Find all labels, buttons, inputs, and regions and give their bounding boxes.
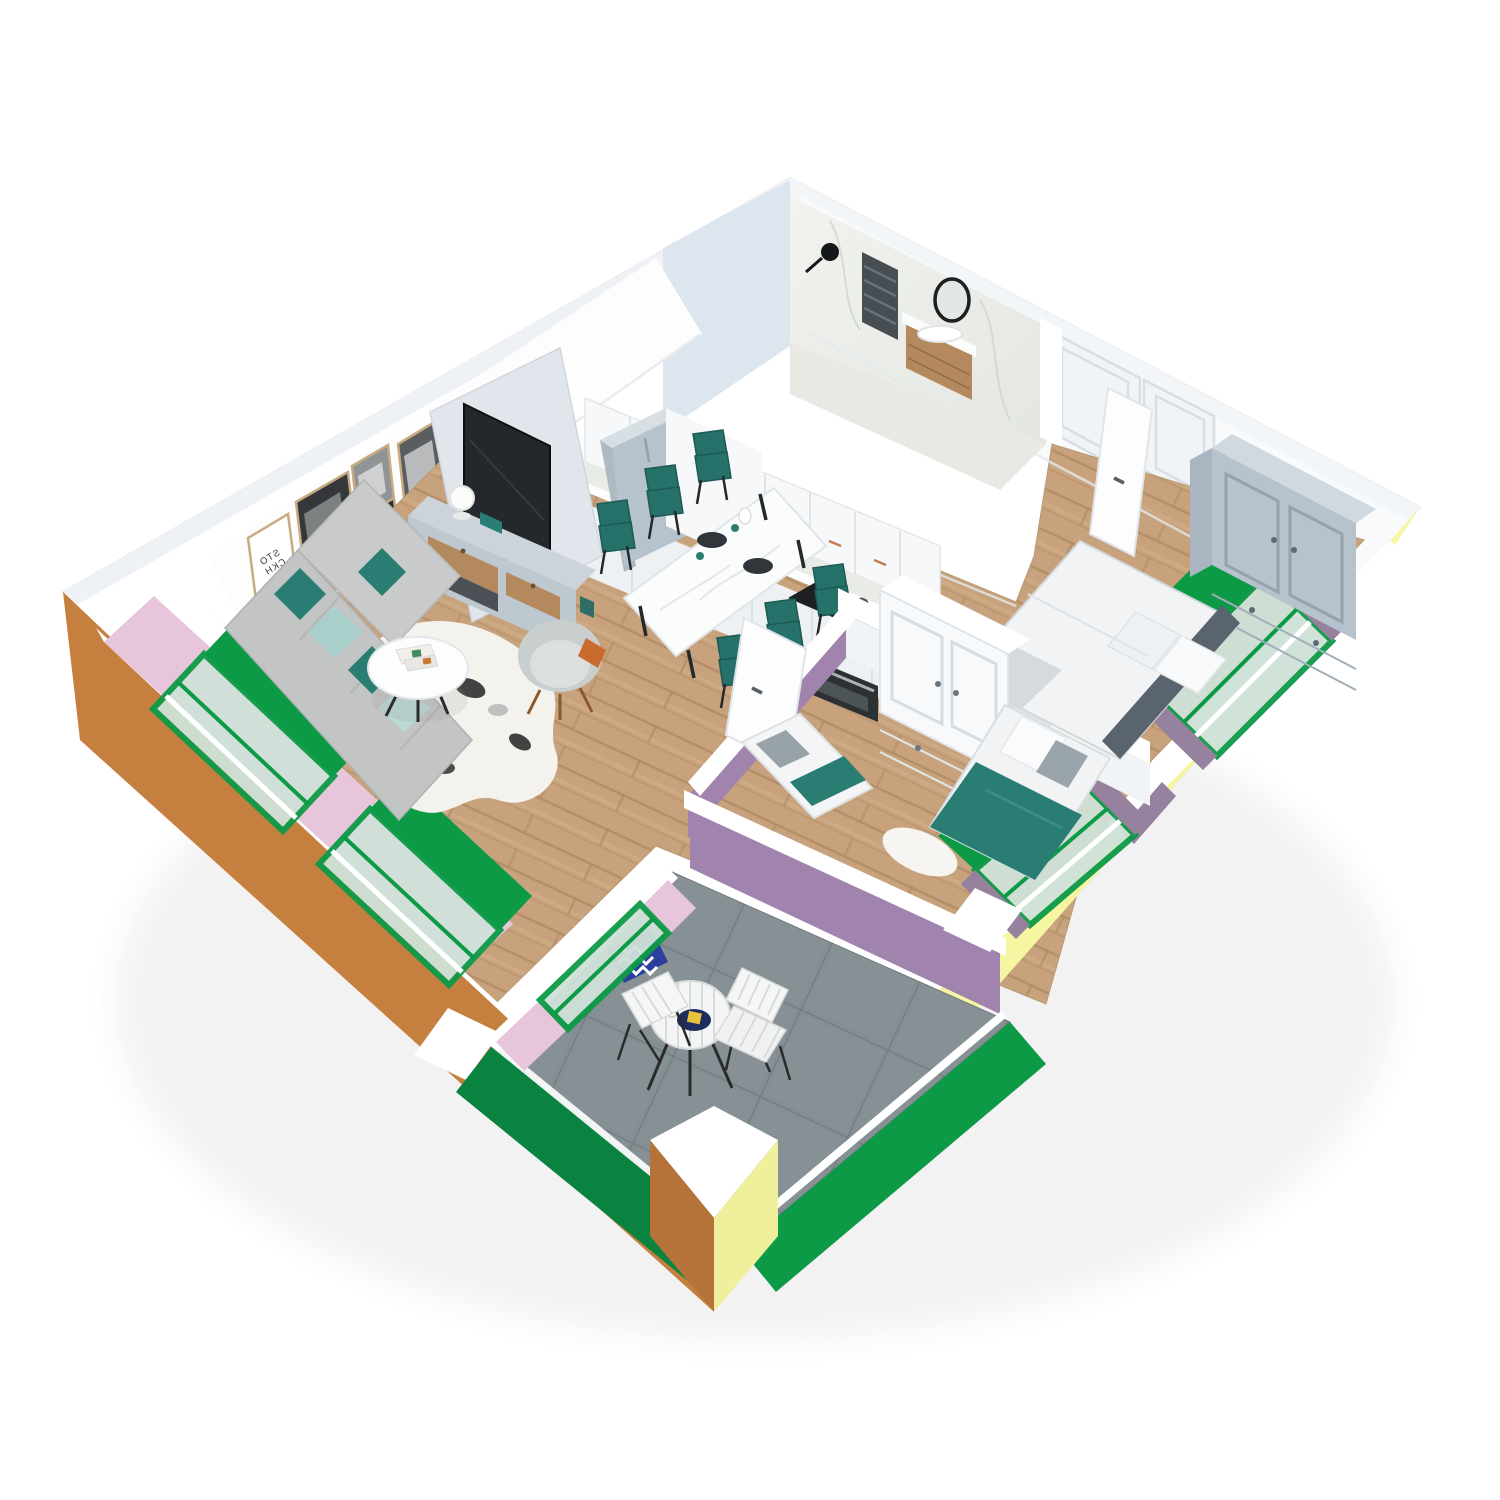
floorplan-render: STO CKH OLM xyxy=(0,0,1500,1500)
round-mirror-icon xyxy=(935,279,969,321)
floorplan-svg: STO CKH OLM xyxy=(0,0,1500,1500)
table-lamp xyxy=(450,486,474,520)
bathroom-divider-cap xyxy=(1040,318,1062,448)
coffee-table xyxy=(368,637,468,722)
